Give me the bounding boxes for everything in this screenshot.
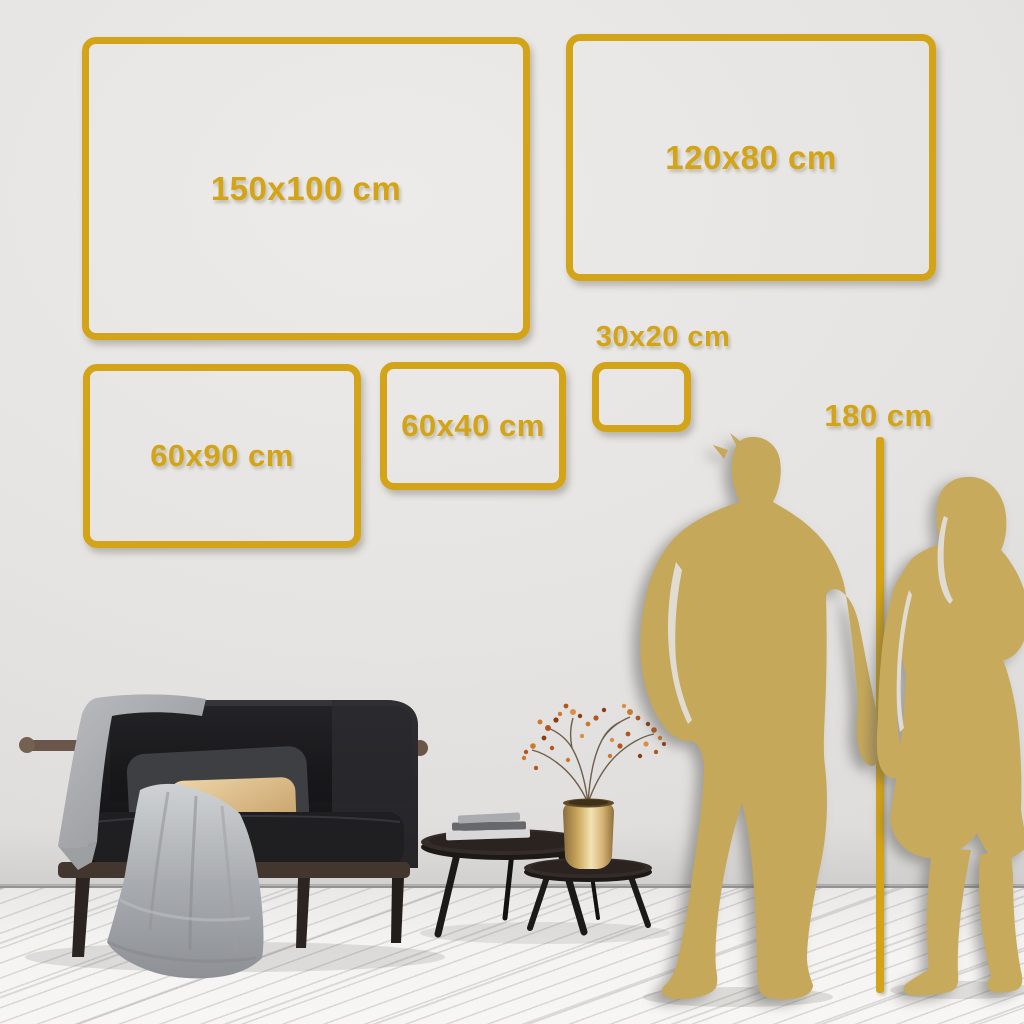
coffee-tables xyxy=(421,704,666,934)
man-silhouette xyxy=(640,433,879,999)
room-scene xyxy=(0,0,1024,1024)
height-marker-label: 180 cm xyxy=(818,398,939,434)
brass-vase xyxy=(563,802,614,869)
sofa xyxy=(19,694,428,978)
woman-silhouette xyxy=(877,477,1024,995)
stacked-books xyxy=(446,812,530,840)
size-label-30x20: 30x20 cm xyxy=(575,321,751,354)
sofa-armrest-knob-left xyxy=(19,737,35,753)
size-guide-canvas: 150x100 cm 120x80 cm 60x90 cm 60x40 cm 3… xyxy=(0,0,1024,1024)
